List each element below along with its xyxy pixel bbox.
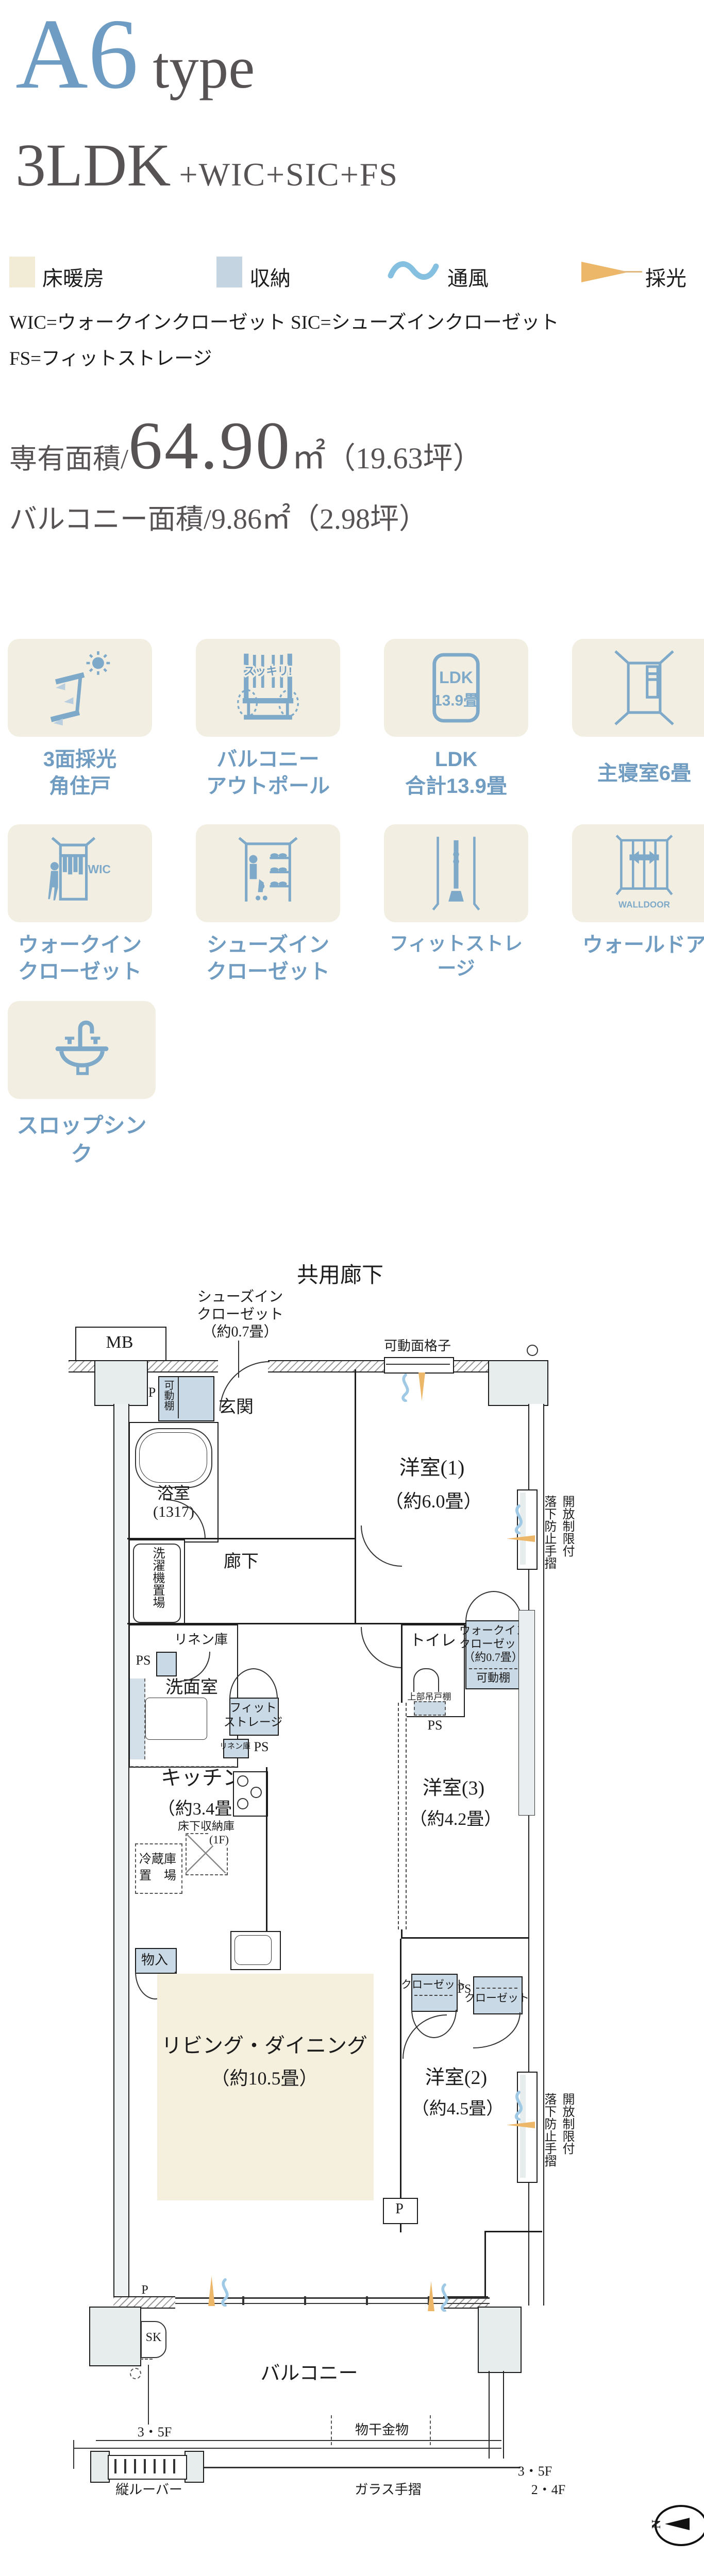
- ldk-badge-line1: LDK: [439, 668, 473, 687]
- balcony-area-label: バルコニー面積/: [9, 496, 211, 537]
- vent-wave-mark: [439, 2283, 450, 2312]
- room3-size-label: （約4.2畳）: [410, 1809, 502, 1829]
- walldoor-badge: WALLDOOR: [618, 899, 671, 909]
- closet-rail-2: [476, 1988, 517, 1989]
- powder-label: 洗面室: [165, 1677, 218, 1698]
- rail-note-line: 落下防止手摺: [540, 2093, 558, 2188]
- feature-label-corner: 3面採光 角住戸: [8, 746, 152, 800]
- kitchen-sink-inner: [234, 1935, 272, 1965]
- legend-ventilation-label: 通風: [447, 262, 489, 292]
- room3-label: 洋室(3): [423, 1777, 484, 1800]
- upper-cabinet-box: [414, 1701, 446, 1716]
- legend-daylight-label: 採光: [645, 262, 686, 292]
- wic-door-arc-r: [493, 1591, 522, 1621]
- outpole-badge: スッキリ!: [244, 665, 292, 677]
- feature-tile-walldoor: WALLDOOR: [572, 824, 704, 922]
- feature-tile-bedroom: [572, 639, 704, 737]
- legend-floor-heating-label: 床暖房: [42, 262, 104, 292]
- feature-tile-sic: [196, 824, 340, 922]
- pipe-label-p1: P: [148, 1385, 156, 1400]
- ps-label-1: PS: [136, 1653, 151, 1668]
- louver-slat: [154, 2459, 156, 2473]
- underfloor-label: 床下収納庫: [178, 1820, 234, 1833]
- room1-size-label: （約6.0畳）: [384, 1491, 482, 1512]
- feature-tile-wic: WIC: [8, 824, 152, 922]
- kitchen-label: キッチン: [161, 1766, 243, 1790]
- wall-room3-bottom: [401, 1937, 529, 1939]
- exclusive-area-row: 専有面積/ 64.90 ㎡ （19.63坪）: [9, 406, 483, 485]
- corridor-window-strip: [518, 1610, 535, 1816]
- louver-slat: [144, 2459, 146, 2473]
- feature-label-outpole: バルコニー アウトポール: [196, 746, 340, 800]
- column-top-right: [488, 1360, 548, 1406]
- balcony-rail-line1: [96, 2440, 501, 2441]
- outpole-icon: スッキリ!: [222, 647, 314, 729]
- feature-label-fs: フィットストレージ: [384, 931, 528, 981]
- louver-label: 縦ルーバー: [115, 2482, 182, 2498]
- page: { "header": { "unit": "A6", "type_word":…: [0, 0, 704, 2576]
- feature-tile-fs: [384, 824, 528, 922]
- vent-wave-mark: [400, 1374, 411, 1402]
- stove-burner: [237, 1775, 248, 1787]
- meter-box-label: MB: [106, 1332, 133, 1352]
- room2-door-arc: [403, 2014, 447, 2059]
- washer-label: 洗濯機置場: [148, 1547, 166, 1624]
- feature-label-bedroom: 主寝室6畳: [572, 760, 704, 787]
- living-label: リビング・ダイニング: [161, 2034, 367, 2058]
- feature-label-line: 合計13.9畳: [384, 773, 528, 800]
- underfloor-label2: (1F): [209, 1833, 229, 1846]
- unit-type-word: type: [153, 38, 255, 97]
- fridge-label-2: 置 場: [139, 1869, 176, 1884]
- vent-wave-mark: [513, 2091, 525, 2121]
- grille-window: [384, 1357, 454, 1374]
- feature-label-line: アウトポール: [196, 773, 340, 800]
- feature-label-line: 角住戸: [8, 773, 152, 800]
- fs-door-arc-right: [253, 1668, 278, 1699]
- fit-storage-icon: [410, 832, 502, 914]
- fit-storage-line1: フィット: [229, 1701, 277, 1715]
- balcony-label: バルコニー: [260, 2363, 358, 2385]
- column-top-left: [94, 1360, 148, 1406]
- storage-box-label: 物入: [141, 1953, 168, 1968]
- column-mark-circle: [527, 1345, 538, 1356]
- rail-note-2: 開放制限付 落下防止手摺: [540, 2093, 576, 2188]
- wall-top-3: [452, 1360, 488, 1372]
- wall-room2-step: [484, 2232, 486, 2298]
- balcony-area-row: バルコニー面積/ 9.86㎡（2.98坪）: [9, 496, 428, 537]
- grille-window-line: [386, 1364, 450, 1365]
- ldk-badge-icon: LDK 13.9畳: [410, 647, 502, 729]
- wic-door-arc-l: [465, 1591, 494, 1621]
- wave-icon: [388, 259, 439, 285]
- balcony-rail-line2: [73, 2448, 501, 2449]
- sic-note-line3: （約0.7畳）: [202, 1324, 278, 1341]
- feature-label-ldk: LDK 合計13.9畳: [384, 746, 528, 800]
- plan-suffix: +WIC+SIC+FS: [179, 158, 398, 191]
- toilet-label: トイレ: [410, 1632, 456, 1650]
- sash-mullion: [366, 2296, 368, 2305]
- living-size-label: （約10.5畳）: [211, 2068, 317, 2089]
- feature-label-line: スロップシンク: [8, 1112, 156, 1168]
- feature-label-line: クローゼット: [196, 958, 340, 985]
- linen-label-2: リネン庫: [220, 1742, 250, 1751]
- ps-label-2: PS: [254, 1739, 269, 1755]
- feature-label-line: ウォールドア: [572, 931, 704, 958]
- wic-note-1: ウォークイン: [459, 1624, 527, 1637]
- feature-label-line: LDK: [384, 746, 528, 773]
- note-line1: WIC=ウォークインクローゼット SIC=シューズインクローゼット: [9, 305, 559, 341]
- drain-circle: [130, 2368, 141, 2379]
- wall-genkan-room1: [355, 1369, 356, 1624]
- kitchen-counter-line: [266, 1767, 267, 1932]
- balcony-area-value: 9.86㎡（2.98坪）: [211, 496, 428, 537]
- feature-tile-slopsink: [8, 1001, 156, 1099]
- stove-burner: [250, 1787, 262, 1798]
- balcony-rail-left: [73, 2440, 74, 2469]
- louver-slat: [134, 2459, 136, 2473]
- slop-sink-label: SK: [146, 2331, 162, 2345]
- wic-badge: WIC: [88, 862, 111, 876]
- sic-note-line2: クローゼット: [197, 1307, 283, 1323]
- pillar-label-2: P: [141, 2283, 148, 2298]
- ps-box-1: [156, 1652, 177, 1676]
- rail-note-line: 開放制限付: [558, 2093, 576, 2188]
- plan-subtitle: 3LDK +WIC+SIC+FS: [15, 135, 398, 196]
- balcony-column-left: [89, 2307, 141, 2366]
- feature-label-walldoor: ウォールドア: [572, 931, 704, 958]
- leader-35f: [148, 2365, 149, 2431]
- fridge-label-1: 冷蔵庫: [139, 1853, 176, 1867]
- walldoor-icon: WALLDOOR: [598, 832, 691, 914]
- hallway-label: 廊下: [224, 1552, 259, 1572]
- unit-name: A6: [15, 4, 138, 105]
- room1-label: 洋室(1): [399, 1456, 465, 1480]
- louver-slat: [114, 2459, 116, 2473]
- louver-slat: [173, 2459, 175, 2473]
- sic-shelf-label: 可動棚: [161, 1380, 176, 1417]
- daylight-mark: [208, 2276, 215, 2306]
- vent-wave-mark: [220, 2278, 231, 2307]
- corner-daylight-icon: [33, 647, 126, 729]
- feature-tile-corner: [8, 639, 152, 737]
- walldoor-dashed: [398, 1703, 407, 1929]
- sash-mullion: [242, 2296, 244, 2305]
- feature-label-line: シューズイン: [196, 931, 340, 958]
- legend-storage-label: 収納: [249, 262, 291, 292]
- feature-label-line: 3面採光: [8, 746, 152, 773]
- ps-label-4: PS: [458, 1982, 472, 1997]
- ps-label-3: PS: [428, 1718, 443, 1733]
- slop-sink-icon: [36, 1009, 128, 1091]
- vent-wave-mark: [513, 1504, 525, 1534]
- closet-rail-1: [414, 1995, 452, 1996]
- rail-note-line: 開放制限付: [558, 1495, 576, 1585]
- wic-note-3: （約0.7畳）: [463, 1651, 523, 1664]
- hanger-label: 物干金物: [355, 2422, 409, 2438]
- room2-size-label: （約4.5畳）: [412, 2099, 504, 2119]
- glass-rail-label: ガラス手摺: [355, 2482, 421, 2498]
- daylight-arrow-tail: [618, 271, 642, 273]
- wall-corridor-top: [127, 1538, 356, 1539]
- feature-label-slopsink: スロップシンク: [8, 1112, 156, 1168]
- feature-tile-outpole: スッキリ!: [196, 639, 340, 737]
- sic-divider: [178, 1377, 179, 1418]
- movable-grille-label: 可動面格子: [384, 1338, 451, 1354]
- fit-storage-line2: ストレージ: [224, 1716, 283, 1729]
- daylight-mark: [418, 1372, 425, 1401]
- linen-label-1: リネン庫: [174, 1632, 228, 1648]
- plan-title: A6 type: [15, 4, 255, 105]
- pillar-label: P: [395, 2201, 404, 2217]
- louver-post-l: [90, 2451, 110, 2483]
- exclusive-area-value: 64.90: [128, 406, 292, 485]
- drain-line: [140, 2359, 153, 2360]
- balcony-column-right: [478, 2307, 522, 2373]
- storage-door-arc-l: [135, 1972, 156, 1999]
- louver-slat: [124, 2459, 126, 2473]
- feature-tile-ldk: LDK 13.9畳: [384, 639, 528, 737]
- feature-label-line: バルコニー: [196, 746, 340, 773]
- feature-label-line: 主寝室6畳: [572, 760, 704, 787]
- room1-door-arc: [361, 1526, 402, 1567]
- wall-room2-bottom: [484, 2231, 542, 2232]
- louver-post-r: [185, 2451, 204, 2483]
- wall-top-2: [268, 1360, 384, 1372]
- bedroom-icon: [598, 647, 691, 729]
- plan-compass-needle: [665, 2518, 690, 2530]
- stove-burner: [237, 1798, 248, 1809]
- common-corridor-label: 共用廊下: [297, 1263, 383, 1288]
- closet-label-1: クローゼット: [401, 1978, 466, 1991]
- bathtub-inner: [139, 1432, 207, 1483]
- balcony-wall-right: [489, 2371, 504, 2459]
- f24-label: 2・4F: [531, 2482, 565, 2498]
- note-line2: FS=フィットストレージ: [9, 341, 559, 377]
- feature-label-wic: ウォークイン クローゼット: [8, 931, 152, 985]
- rail-note-line: 落下防止手摺: [540, 1495, 558, 1585]
- louver-slat: [163, 2459, 165, 2473]
- fridge-space: [135, 1843, 182, 1894]
- entrance-label: 玄関: [219, 1397, 254, 1417]
- closet2-arc: [473, 2012, 521, 2048]
- vanity-counter: [145, 1698, 207, 1740]
- closet-label-2: クローゼット: [464, 1992, 529, 2004]
- wic-rail: [469, 1668, 517, 1669]
- room2-label: 洋室(2): [425, 2067, 487, 2090]
- wic-shelf-label: 可動棚: [476, 1671, 510, 1684]
- feature-label-sic: シューズイン クローゼット: [196, 931, 340, 985]
- exclusive-area-unit: ㎡: [292, 429, 326, 479]
- shoes-in-closet-icon: [222, 832, 314, 914]
- f35-label-right: 3・5F: [518, 2464, 552, 2479]
- exclusive-area-tsubo: （19.63坪）: [326, 434, 483, 477]
- feature-label-line: フィットストレージ: [384, 931, 528, 981]
- walk-in-closet-icon: WIC: [33, 832, 126, 914]
- f35-label-left: 3・5F: [138, 2425, 172, 2440]
- feature-label-line: ウォークイン: [8, 931, 152, 958]
- vanity-strip: [130, 1679, 145, 1759]
- plan-compass-n: N: [650, 2520, 664, 2529]
- legend-storage-swatch: [216, 257, 242, 287]
- legend-floor-heating-swatch: [9, 257, 35, 287]
- ldk-badge-line2: 13.9畳: [433, 692, 479, 709]
- sash-mullion: [304, 2296, 306, 2305]
- exclusive-area-label: 専有面積/: [9, 436, 128, 477]
- feature-label-line: クローゼット: [8, 958, 152, 985]
- wic-note-2: クローゼット: [459, 1637, 527, 1650]
- abbreviation-notes: WIC=ウォークインクローゼット SIC=シューズインクローゼット FS=フィッ…: [9, 305, 559, 378]
- toilet-door-arc: [361, 1627, 402, 1668]
- sic-note-line1: シューズイン: [197, 1289, 283, 1306]
- rail-note-1: 開放制限付 落下防止手摺: [540, 1495, 576, 1585]
- upper-cabinet-label: 上部吊戸棚: [408, 1692, 451, 1702]
- plan-ldk: 3LDK: [15, 135, 171, 196]
